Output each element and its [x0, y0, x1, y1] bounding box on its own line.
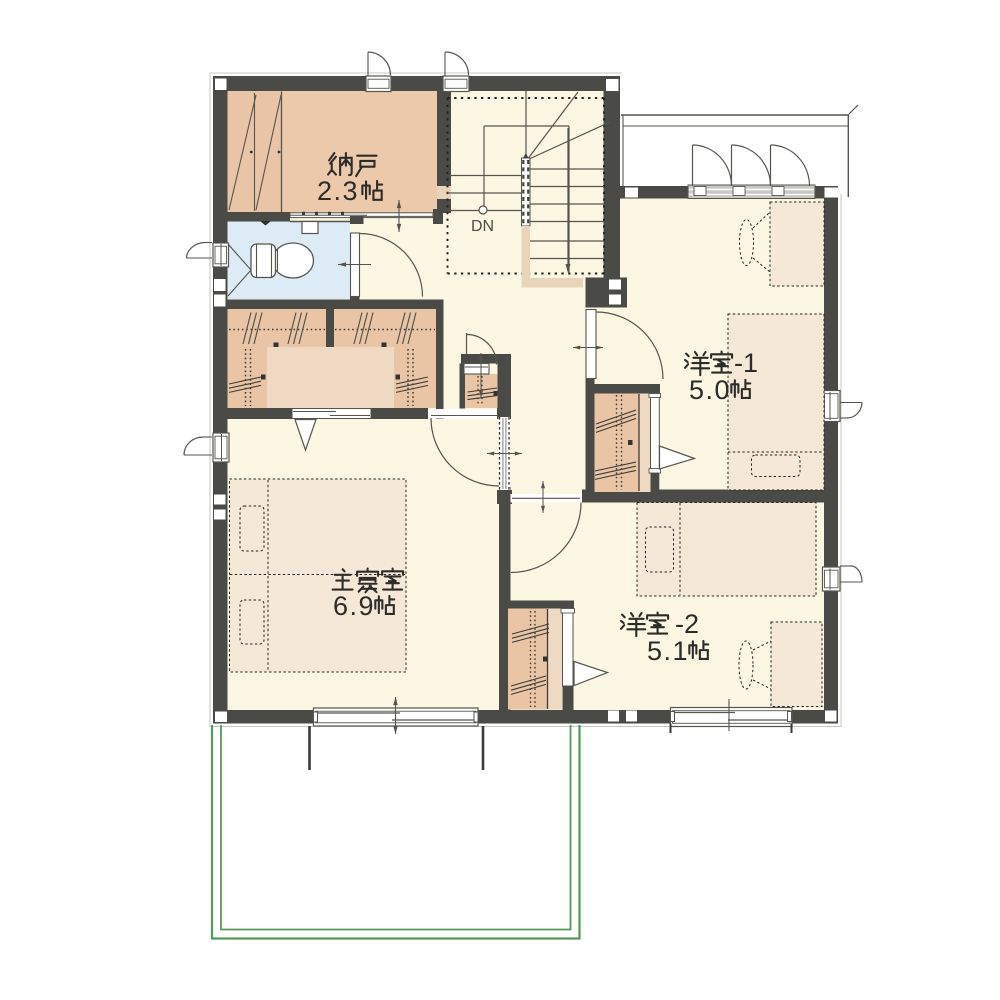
svg-text:-1: -1 — [734, 348, 758, 378]
svg-text:2.3: 2.3 — [317, 176, 359, 206]
svg-text:DN: DN — [471, 218, 494, 235]
svg-text:6.9: 6.9 — [333, 591, 375, 621]
svg-text:5.0: 5.0 — [689, 375, 731, 405]
svg-text:5.1: 5.1 — [647, 636, 689, 666]
svg-text:-2: -2 — [675, 609, 699, 639]
